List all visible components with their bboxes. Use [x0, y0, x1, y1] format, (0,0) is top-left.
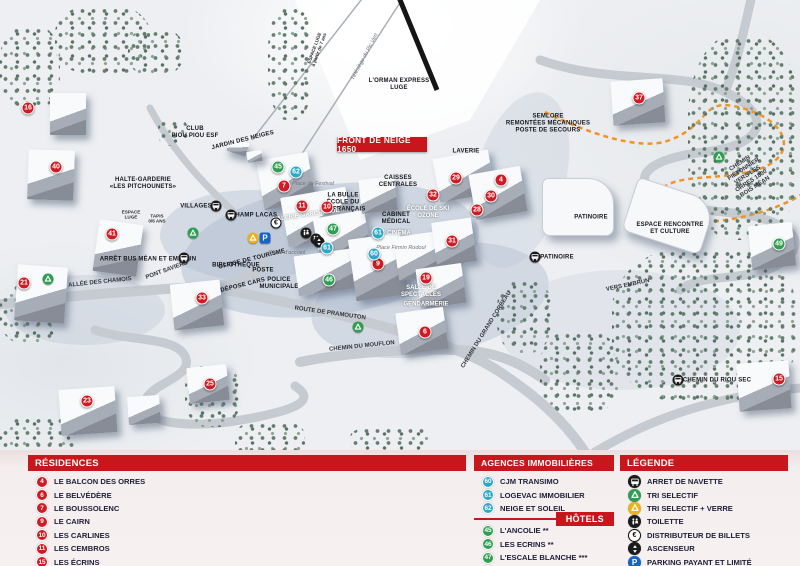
legend-item: TRI SELECTIF + VERRE	[628, 502, 788, 515]
bus-icon	[628, 475, 641, 488]
map-label: CHEMIN DU RIOU SEC	[683, 377, 751, 384]
recycle-green-icon	[188, 228, 199, 239]
legende-panel: LÉGENDE ARRET DE NAVETTETRI SELECTIFTRI …	[620, 455, 788, 566]
residences-header: RÉSIDENCES	[28, 455, 466, 471]
legend-item: ASCENSEUR	[628, 542, 788, 555]
map-label: Place du Festival	[292, 181, 334, 187]
residences-list: 4LE BALCON DES ORRES6LE BELVÉDÈRE7LE BOU…	[28, 471, 466, 566]
map-marker-33: 33	[196, 292, 209, 305]
euro-icon: €	[271, 218, 282, 229]
legend-item: 9LE CAIRN	[36, 515, 182, 528]
residence-marker-badge: 15	[36, 556, 48, 566]
agences-list: 60CJM TRANSIMO61LOGEVAC IMMOBILIER62NEIG…	[474, 471, 614, 515]
building	[14, 264, 68, 323]
legend-item: 15LES ÉCRINS	[36, 555, 182, 566]
tree-cluster	[540, 330, 620, 415]
building	[93, 219, 144, 277]
residence-marker-badge: 11	[36, 543, 48, 555]
map-marker-11: 11	[296, 200, 309, 213]
map-marker-61: 61	[321, 242, 334, 255]
map-label: CAISSES CENTRALES	[379, 175, 417, 189]
building	[27, 149, 75, 201]
legend-item-label: CJM TRANSIMO	[500, 477, 559, 486]
legend-item-label: LES CEMBROS	[54, 544, 110, 553]
map-marker-31: 31	[446, 235, 459, 248]
map-marker-40: 40	[50, 161, 63, 174]
map-marker-7: 7	[278, 180, 291, 193]
legend-item: 11LES CEMBROS	[36, 542, 182, 555]
front-de-neige-banner: FRONT DE NEIGE 1650	[337, 137, 427, 152]
recycle-yellow-icon	[628, 502, 641, 515]
map-marker-25: 25	[204, 378, 217, 391]
toilet-icon	[628, 515, 641, 528]
map-marker-6: 6	[419, 326, 432, 339]
building	[127, 395, 161, 425]
legend-item: 46LES ECRINS **	[482, 538, 614, 551]
tree-cluster	[235, 420, 305, 452]
recycle-green-icon	[714, 152, 725, 163]
map-marker-4: 4	[495, 174, 508, 187]
legend-item-label: ASCENSEUR	[647, 544, 695, 553]
recycle-yellow-icon	[248, 233, 259, 244]
map-marker-37: 37	[633, 92, 646, 105]
map-label: ESPACE RENCONTRE ET CULTURE	[636, 222, 703, 236]
bus-icon	[673, 375, 684, 386]
map-marker-29: 29	[450, 172, 463, 185]
legende-list: ARRET DE NAVETTETRI SELECTIFTRI SELECTIF…	[620, 471, 788, 566]
map-marker-32: 32	[427, 189, 440, 202]
map-marker-19: 19	[420, 272, 433, 285]
legend-item: €DISTRIBUTEUR DE BILLETS	[628, 529, 788, 542]
map-label: POLICE MUNICIPALE	[260, 277, 299, 291]
building	[736, 360, 791, 412]
recycle-green-icon	[353, 322, 364, 333]
legend-item-label: L'ESCALE BLANCHE ***	[500, 553, 587, 562]
legend-item: ARRET DE NAVETTE	[628, 475, 788, 488]
map-label: PATINOIRE	[574, 214, 608, 221]
legend-item: 4LE BALCON DES ORRES	[36, 475, 182, 488]
recycle-green-icon	[43, 274, 54, 285]
elevator-icon	[628, 542, 641, 555]
map-marker-15: 15	[773, 373, 786, 386]
parking-icon: P	[628, 556, 641, 566]
legend-item-label: TOILETTE	[647, 517, 684, 526]
legend-item-label: LES CARLINES	[54, 531, 110, 540]
hotel-marker-badge: 47	[482, 552, 494, 564]
legende-header: LÉGENDE	[620, 455, 788, 471]
legend-item-label: LE BALCON DES ORRES	[54, 477, 145, 486]
agency-marker-badge: 60	[482, 476, 494, 488]
map-label: ESPACE LUGE	[122, 210, 141, 221]
legend-item: TRI SELECTIF	[628, 488, 788, 501]
hotels-header: HÔTELS	[556, 512, 614, 526]
legend-item-label: DISTRIBUTEUR DE BILLETS	[647, 531, 750, 540]
legend-item-label: LE BELVÉDÈRE	[54, 491, 112, 500]
map-label: CABINET MÉDICAL	[382, 212, 411, 226]
hotel-marker-badge: 46	[482, 538, 494, 550]
map-marker-45: 45	[272, 161, 285, 174]
map-marker-28: 28	[471, 204, 484, 217]
agences-header: AGENCES IMMOBILIÈRES	[474, 455, 614, 471]
legend-item: TOILETTE	[628, 515, 788, 528]
map-label: SALLE DE SPECTACLES	[401, 285, 441, 299]
residences-column: 4LE BALCON DES ORRES6LE BELVÉDÈRE7LE BOU…	[36, 475, 182, 566]
map-label: SEMLORE REMONTÉES MÉCANIQUES POSTE DE SE…	[506, 113, 590, 134]
legend-item: PPARKING PAYANT ET LIMITÉ	[628, 555, 788, 566]
hotel-marker-badge: 45	[482, 525, 494, 537]
tree-cluster	[128, 28, 183, 76]
map-marker-21: 21	[18, 277, 31, 290]
map-marker-61: 61	[372, 227, 385, 240]
map-label: Place Firmin Rodoul	[376, 245, 426, 251]
tree-cluster	[350, 425, 430, 452]
residence-marker-badge: 9	[36, 516, 48, 528]
hotels-divider: HÔTELS	[474, 518, 614, 520]
map-label: HALTE-GARDERIE «LES PITCHOUNETS»	[110, 177, 176, 191]
bus-icon	[211, 201, 222, 212]
bus-icon	[530, 252, 541, 263]
legend-item: 10LES CARLINES	[36, 529, 182, 542]
residence-marker-badge: 4	[36, 476, 48, 488]
map-marker-16: 16	[22, 102, 35, 115]
map-label: TAPIS 0/6 ANS	[148, 214, 165, 225]
resort-map: LAVERIECAISSES CENTRALESÉCOLE DE SKI OZO…	[0, 0, 800, 452]
map-label: L'ORMAN EXPRESS LUGE	[369, 78, 430, 92]
map-label: GENDARMERIE	[403, 301, 448, 308]
map-label: PATINOIRE	[540, 254, 574, 261]
legend-item-label: TRI SELECTIF + VERRE	[647, 504, 733, 513]
legend-item: 61LOGEVAC IMMOBILIER	[482, 488, 614, 501]
map-label: LAVERIE	[453, 148, 480, 155]
building	[246, 150, 262, 163]
legend-item: 45L'ANCOLIE **	[482, 524, 614, 537]
map-marker-41: 41	[106, 228, 119, 241]
residence-marker-badge: 6	[36, 489, 48, 501]
building	[170, 280, 225, 331]
legend-item-label: ARRET DE NAVETTE	[647, 477, 723, 486]
map-label: ÉCOLE DE SKI OZONE	[407, 206, 449, 220]
legend-item: 7LE BOUSSOLENC	[36, 502, 182, 515]
legend-item: 60CJM TRANSIMO	[482, 475, 614, 488]
legend-strip: RÉSIDENCES 4LE BALCON DES ORRES6LE BELVÉ…	[0, 450, 800, 566]
tree-cluster	[497, 278, 552, 353]
map-label: Place d'accueil	[269, 250, 306, 256]
legend-item-label: LE BOUSSOLENC	[54, 504, 119, 513]
legend-item-label: LOGEVAC IMMOBILIER	[500, 491, 585, 500]
legend-item-label: TRI SELECTIF	[647, 491, 698, 500]
euro-icon: €	[628, 529, 641, 542]
legend-item-label: LES ÉCRINS	[54, 558, 100, 566]
map-label: CHAMP LACAS	[231, 212, 277, 219]
legend-item-label: LE CAIRN	[54, 517, 90, 526]
map-marker-46: 46	[323, 274, 336, 287]
hotels-list: 45L'ANCOLIE **46LES ECRINS **47L'ESCALE …	[474, 520, 614, 566]
residence-marker-badge: 10	[36, 529, 48, 541]
residence-marker-badge: 7	[36, 502, 48, 514]
map-marker-49: 49	[773, 238, 786, 251]
map-marker-23: 23	[81, 395, 94, 408]
legend-item: 47L'ESCALE BLANCHE ***	[482, 551, 614, 564]
map-marker-62: 62	[290, 166, 303, 179]
legend-item: 6LE BELVÉDÈRE	[36, 488, 182, 501]
map-label: CLUB PIOU PIOU ESF	[172, 126, 219, 140]
agency-marker-badge: 61	[482, 489, 494, 501]
map-marker-30: 30	[485, 190, 498, 203]
agences-panel: AGENCES IMMOBILIÈRES 60CJM TRANSIMO61LOG…	[474, 455, 614, 566]
resort-map-page: { "page": { "title_banner": "FRONT DE NE…	[0, 0, 800, 566]
map-label: VILLAGES	[180, 203, 212, 210]
map-marker-60: 60	[368, 248, 381, 261]
bus-icon	[179, 253, 190, 264]
legend-item-label: L'ANCOLIE **	[500, 526, 549, 535]
map-label: POSTE	[252, 267, 273, 274]
legend-item-label: LES ECRINS **	[500, 540, 554, 549]
parking-icon: P	[260, 233, 271, 244]
residences-panel: RÉSIDENCES 4LE BALCON DES ORRES6LE BELVÉ…	[28, 455, 466, 566]
map-marker-10: 10	[321, 201, 334, 214]
agency-marker-badge: 62	[482, 502, 494, 514]
bus-icon	[226, 210, 237, 221]
recycle-green-icon	[628, 489, 641, 502]
map-label: CINÉMA	[387, 230, 411, 237]
building	[50, 93, 86, 135]
building	[542, 178, 614, 236]
map-marker-47: 47	[327, 223, 340, 236]
legend-item-label: PARKING PAYANT ET LIMITÉ	[647, 558, 752, 566]
building	[58, 386, 117, 436]
